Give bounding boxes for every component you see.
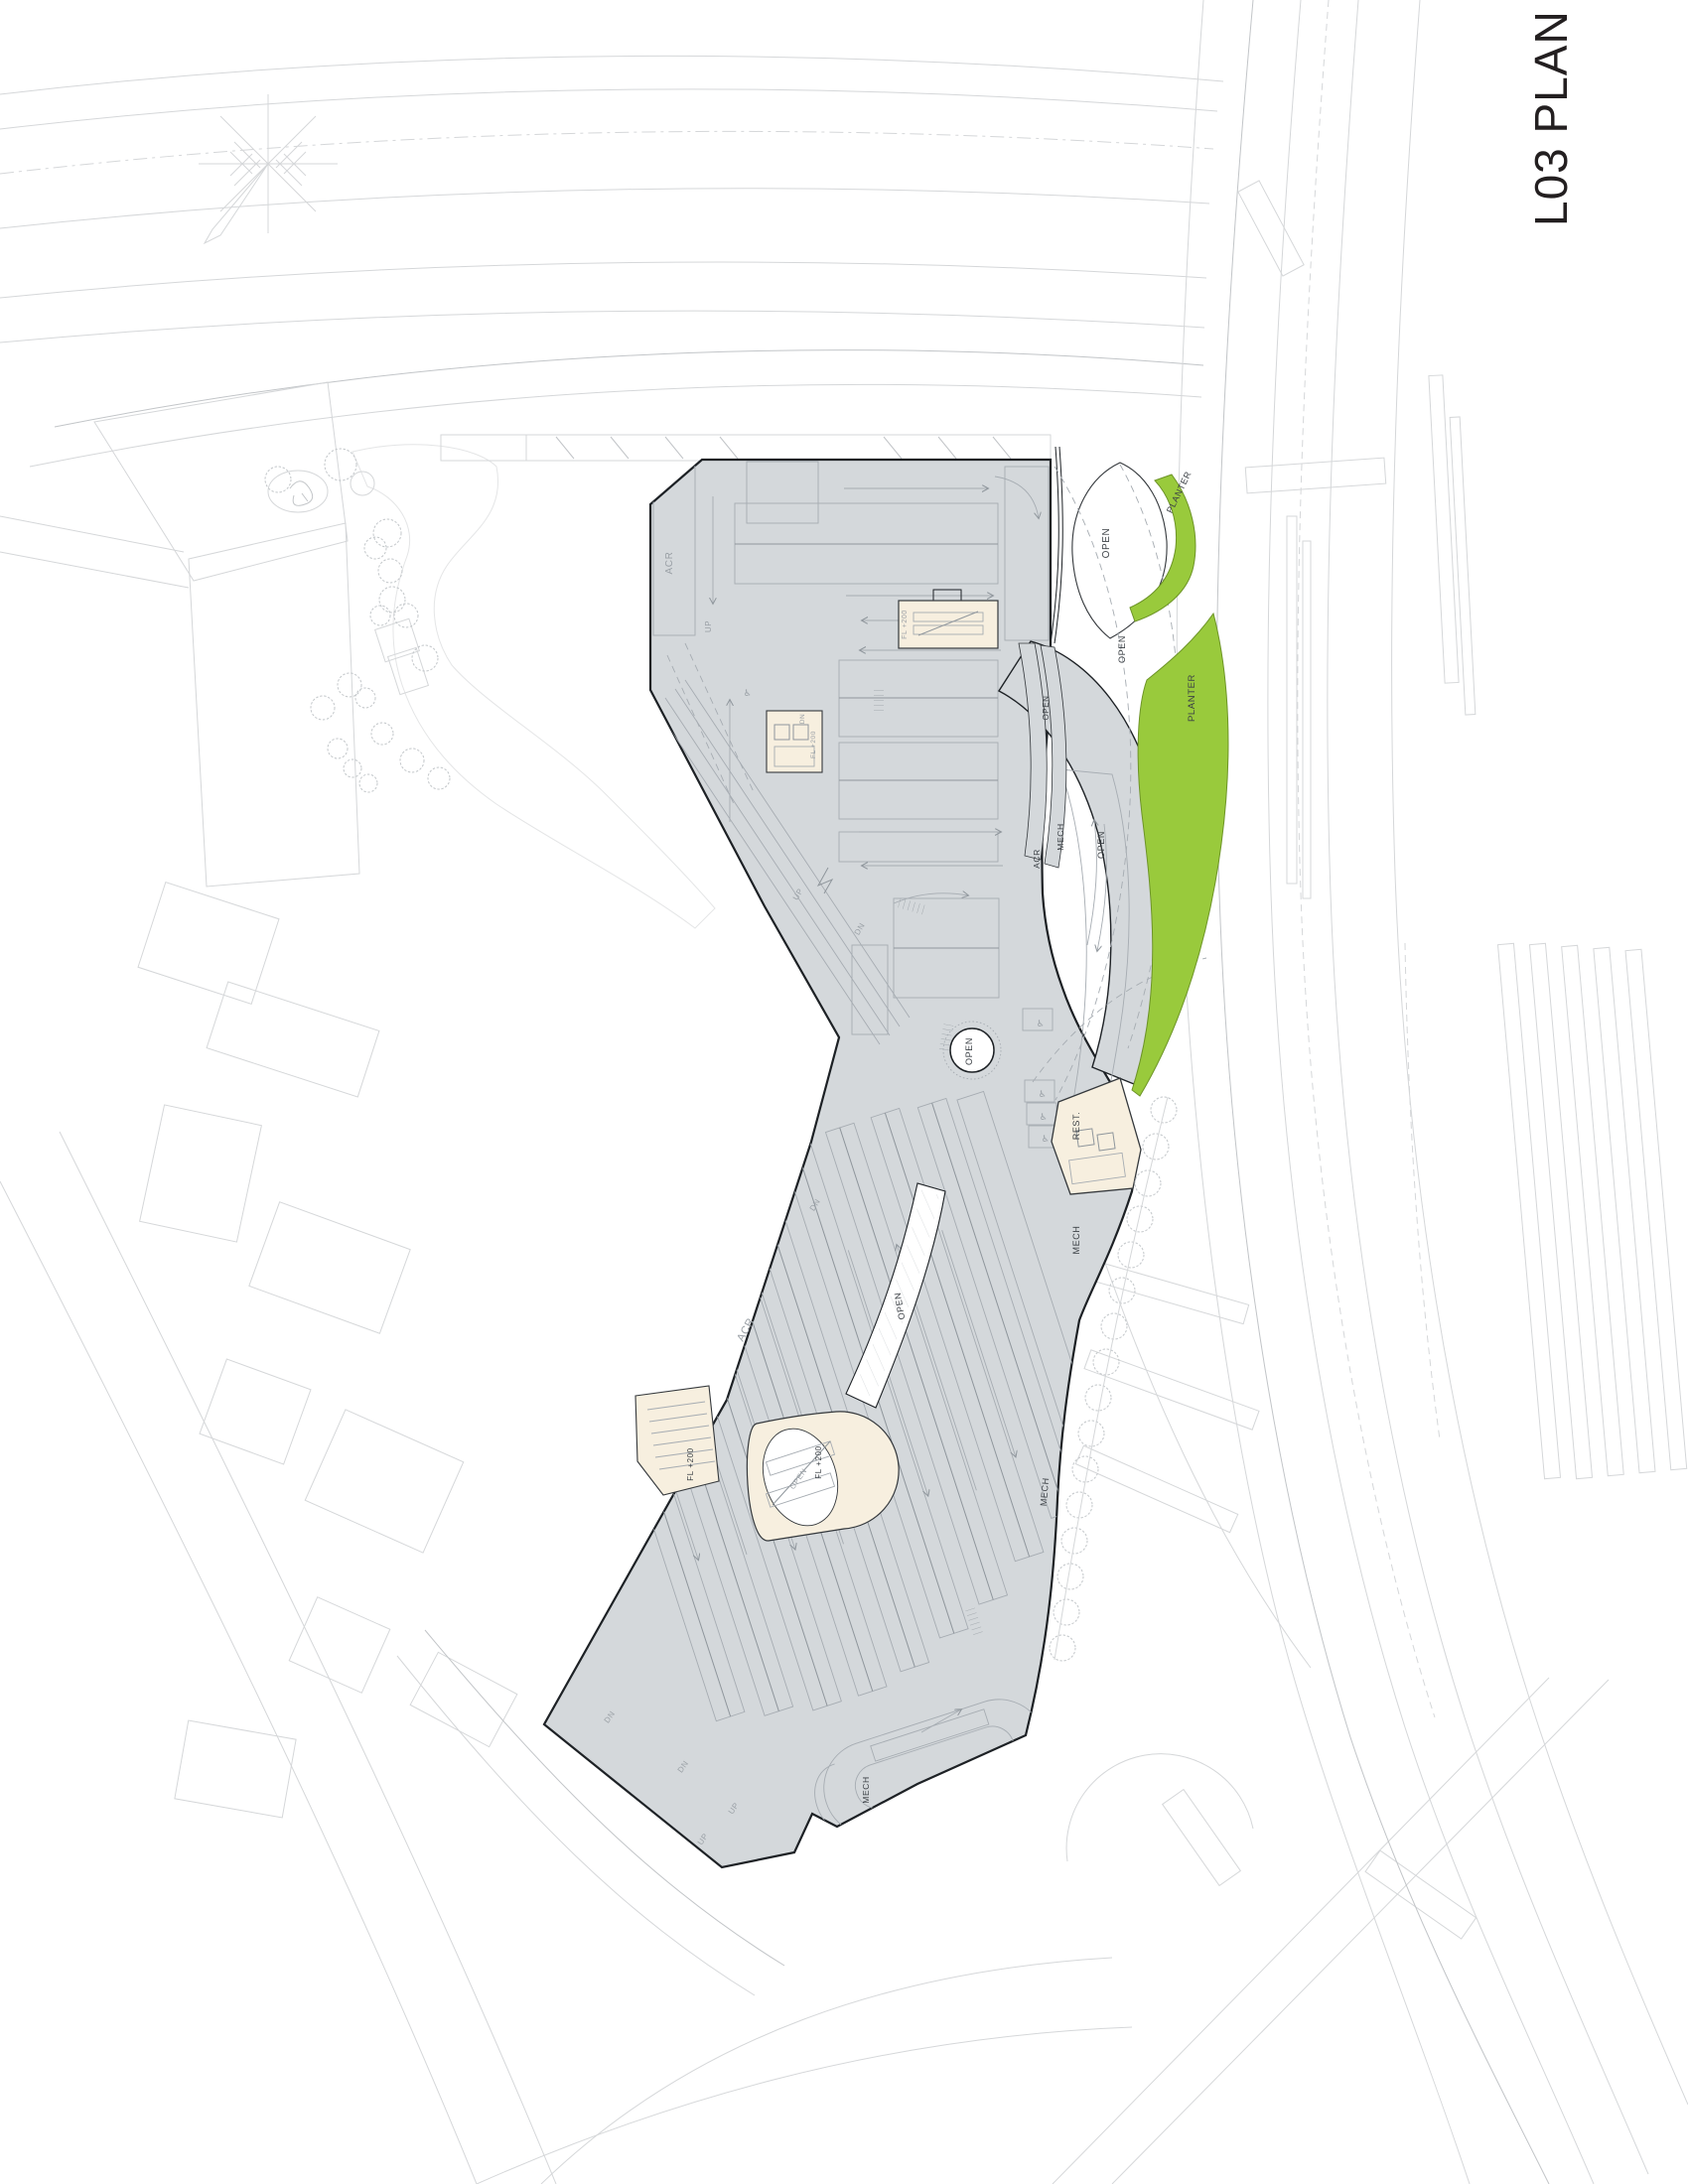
plan-label-mech-10: MECH <box>1055 823 1065 850</box>
plan-label-acr-0: ACR <box>664 552 675 575</box>
plan-label-fl-200-4: FL +200 <box>810 731 817 758</box>
plan-label--30: ♿ <box>744 688 753 698</box>
plan-label-dn-3: DN <box>799 714 806 725</box>
context-blocks-left <box>138 883 517 1818</box>
context-parking-top <box>441 435 1051 461</box>
plan-label-open-5: OPEN <box>1101 528 1112 559</box>
plan-label-planter-9: PLANTER <box>1187 674 1197 722</box>
plan-label--34: ♿ <box>1042 1134 1051 1144</box>
floor-plan-canvas: ACRUPFL +200DNFL +200OPENPLANTEROPENOPEN… <box>0 0 1688 2184</box>
playground-equipment <box>290 481 313 506</box>
context-parking-far-right <box>1497 943 1686 1478</box>
plan-label-open-7: OPEN <box>1117 635 1127 663</box>
plan-label-up-1: UP <box>704 620 713 632</box>
north-arrow-icon <box>199 94 338 243</box>
sheet-title: L03 PLAN <box>1525 10 1577 226</box>
plan-label--33: ♿ <box>1040 1112 1049 1122</box>
context-street-right <box>1177 0 1688 2184</box>
canopy-blade <box>1051 447 1062 643</box>
context-parking-right-mid <box>1075 1249 1311 1668</box>
plan-label-mech-17: MECH <box>1071 1226 1081 1255</box>
plan-label-mech-25: MECH <box>861 1776 871 1803</box>
plan-label-rest-16: REST. <box>1071 1112 1081 1141</box>
context-park <box>265 445 715 928</box>
plan-label-fl-200-2: FL +200 <box>902 610 909 639</box>
crosswalk <box>1245 458 1385 493</box>
plan-label-fl-200-23: FL +200 <box>686 1447 695 1480</box>
ramp-arrow-up <box>1087 820 1096 945</box>
plan-label-open-15: OPEN <box>964 1037 974 1065</box>
plan-label--31: ♿ <box>1037 1019 1046 1028</box>
crosswalk-2 <box>1238 181 1304 276</box>
plan-label-open-12: OPEN <box>1096 831 1106 859</box>
plan-label-acr-11: ACR <box>1032 849 1042 869</box>
plan-label--32: ♿ <box>1039 1089 1048 1099</box>
drawing-sheet: ACRUPFL +200DNFL +200OPENPLANTEROPENOPEN… <box>0 0 1688 2184</box>
plan-label-fl-200-21: FL +200 <box>814 1445 823 1478</box>
core-lower-left <box>635 1386 719 1495</box>
plan-label-open-8: OPEN <box>1042 695 1051 720</box>
